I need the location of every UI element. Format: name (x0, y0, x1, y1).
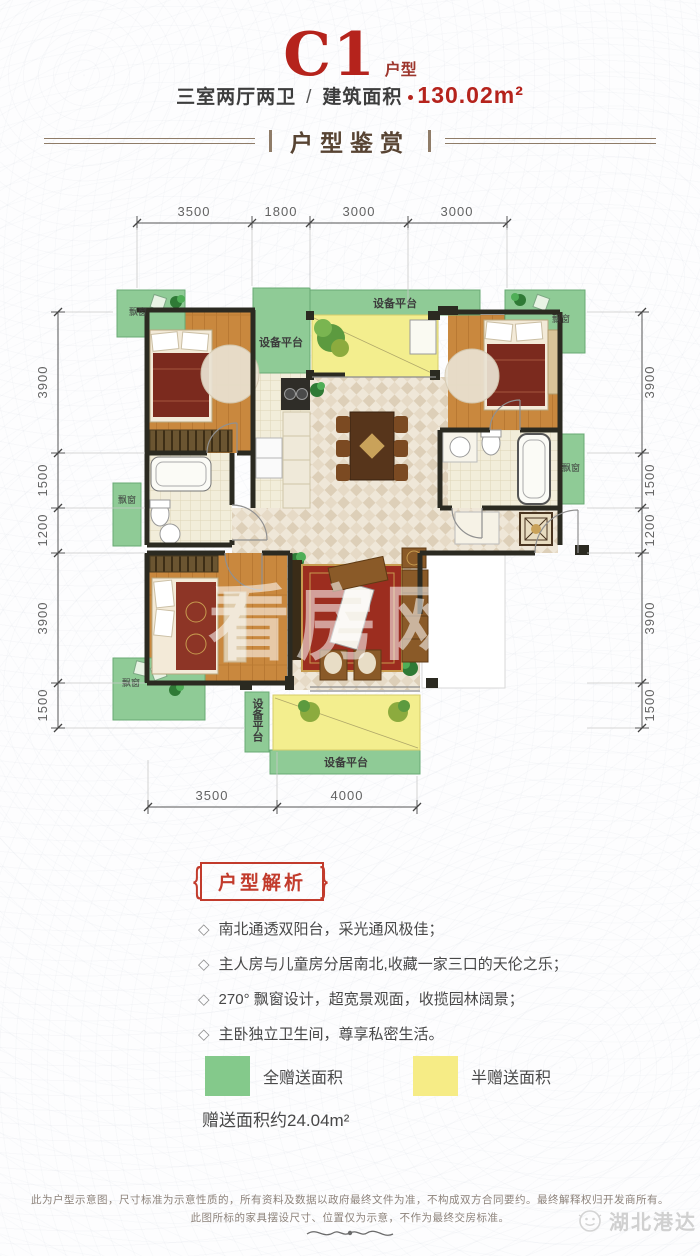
label-equip-platform-bottom: 设备平台 (324, 755, 368, 769)
banner-line-right (445, 138, 656, 144)
label-equip-platform-side: 设备平台 (251, 697, 265, 743)
dim-bottom-2: 4000 (331, 788, 364, 803)
footer-flourish-icon (305, 1226, 395, 1240)
diamond-bullet-icon: ◇ (198, 955, 210, 973)
banner-tick-left (269, 130, 272, 152)
site-watermark: 看房网 (208, 579, 472, 670)
area-value: 130.02m² (417, 82, 523, 108)
page-title: C1户型 (0, 20, 700, 90)
bullet-text: 270° 飘窗设计，超宽景观面，收揽园林阔景； (219, 988, 524, 1009)
disclaimer-line-1: 此为户型示意图，尺寸标准为示意性质的，所有资料及数据以政府最终文件为准，不构成双… (0, 1192, 700, 1207)
brand-name: 湖北港达 (609, 1206, 697, 1235)
banner-tick-right (428, 130, 431, 152)
dim-left-5: 1500 (35, 689, 50, 722)
label-bay-window-tr: 飘窗 (552, 313, 570, 324)
dim-right-5: 1500 (642, 689, 657, 722)
brand-watermark: 湖北港达 (576, 1206, 697, 1235)
diamond-bullet-icon: ◇ (198, 990, 210, 1008)
label-bay-window-tl: 飘窗 (129, 306, 147, 317)
section-banner: 户型鉴赏 (0, 124, 700, 158)
list-item: ◇主卧独立卫生间，尊享私密生活。 (198, 1023, 568, 1044)
label-bay-window-bl: 飘窗 (122, 677, 140, 688)
list-item: ◇主人房与儿童房分居南北,收藏一家三口的天伦之乐； (198, 953, 568, 974)
brand-logo-icon (576, 1207, 604, 1235)
analysis-section-title-box: { 户型解析 } (200, 862, 324, 901)
half-gift-label: 半赠送面积 (471, 1064, 551, 1088)
bullet-text: 主卧独立卫生间，尊享私密生活。 (219, 1023, 444, 1044)
label-bay-window-mr: 飘窗 (562, 462, 580, 473)
area-label: 建筑面积 (322, 87, 402, 108)
separator: / (306, 87, 312, 108)
dim-bottom-1: 3500 (196, 788, 229, 803)
floor-plan: 设备平台 设备平台 设备平台 设备平台 飘窗 飘窗 飘窗 飘窗 飘窗 (0, 188, 700, 838)
unit-code-suffix: 户型 (385, 62, 417, 79)
dim-right-1: 3900 (642, 366, 657, 399)
full-gift-label: 全赠送面积 (263, 1064, 343, 1088)
unit-summary: 三室两厅两卫/建筑面积130.02m² (0, 82, 700, 109)
dim-top-2: 1800 (265, 204, 298, 219)
flyer-page: C1户型 三室两厅两卫/建筑面积130.02m² 户型鉴赏 (0, 0, 700, 1256)
dim-top-4: 3000 (441, 204, 474, 219)
full-gift-swatch (205, 1056, 250, 1096)
label-bay-window-ml: 飘窗 (118, 494, 136, 505)
dim-right-4: 3900 (642, 602, 657, 635)
dim-left-4: 3900 (35, 602, 50, 635)
dim-right-3: 1200 (642, 514, 657, 547)
banner-line-left (44, 138, 255, 144)
diamond-bullet-icon: ◇ (198, 920, 210, 938)
dim-top-3: 3000 (343, 204, 376, 219)
dim-left-1: 3900 (35, 366, 50, 399)
list-item: ◇南北通透双阳台，采光通风极佳； (198, 918, 568, 939)
bullet-text: 南北通透双阳台，采光通风极佳； (219, 918, 444, 939)
brace-right: } (320, 860, 331, 902)
dim-right-2: 1500 (642, 464, 657, 497)
layout-type: 三室两厅两卫 (176, 87, 296, 108)
label-equip-platform-top: 设备平台 (373, 296, 417, 310)
dim-top-1: 3500 (178, 204, 211, 219)
analysis-bullet-list: ◇南北通透双阳台，采光通风极佳； ◇主人房与儿童房分居南北,收藏一家三口的天伦之… (198, 918, 568, 1058)
half-gift-swatch (413, 1056, 458, 1096)
banner-title: 户型鉴赏 (286, 124, 414, 158)
gift-area-legend: 全赠送面积 半赠送面积 (205, 1056, 551, 1096)
dim-left-3: 1200 (35, 514, 50, 547)
label-equip-platform-left: 设备平台 (259, 335, 303, 349)
dot-icon (408, 95, 413, 100)
diamond-bullet-icon: ◇ (198, 1025, 210, 1043)
bullet-text: 主人房与儿童房分居南北,收藏一家三口的天伦之乐； (219, 953, 568, 974)
dim-left-2: 1500 (35, 464, 50, 497)
unit-code: C1 (283, 20, 377, 90)
brace-left: { (193, 860, 204, 902)
analysis-section-title: 户型解析 (218, 873, 306, 894)
gift-area-note: 赠送面积约24.04m² (202, 1106, 349, 1131)
list-item: ◇270° 飘窗设计，超宽景观面，收揽园林阔景； (198, 988, 568, 1009)
